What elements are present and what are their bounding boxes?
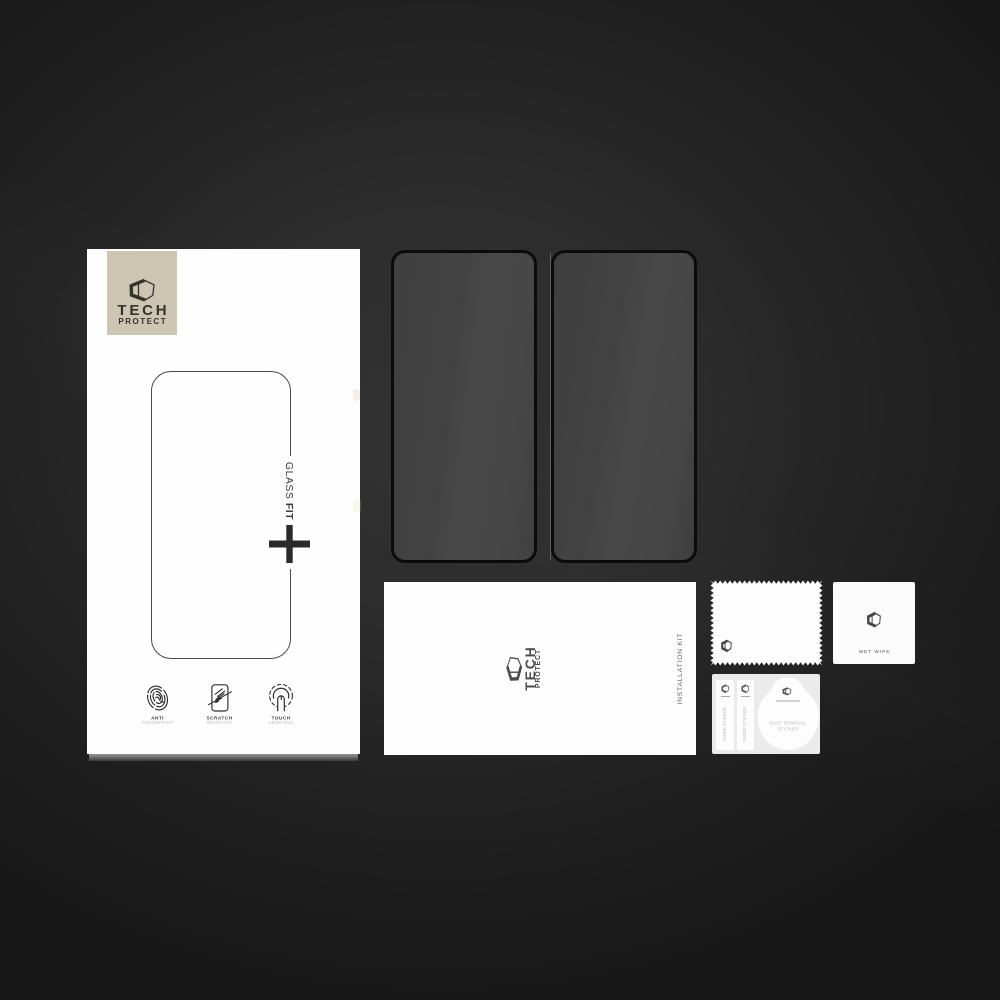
svg-text:FINGERPRINT: FINGERPRINT xyxy=(142,720,174,725)
svg-text:STICKER: STICKER xyxy=(778,727,799,732)
svg-text:WET WIPE: WET WIPE xyxy=(859,649,891,655)
svg-text:SENSITIVE: SENSITIVE xyxy=(269,720,294,725)
svg-text:RESISTANT: RESISTANT xyxy=(206,720,232,725)
svg-text:DUST REMOVAL: DUST REMOVAL xyxy=(769,721,806,726)
